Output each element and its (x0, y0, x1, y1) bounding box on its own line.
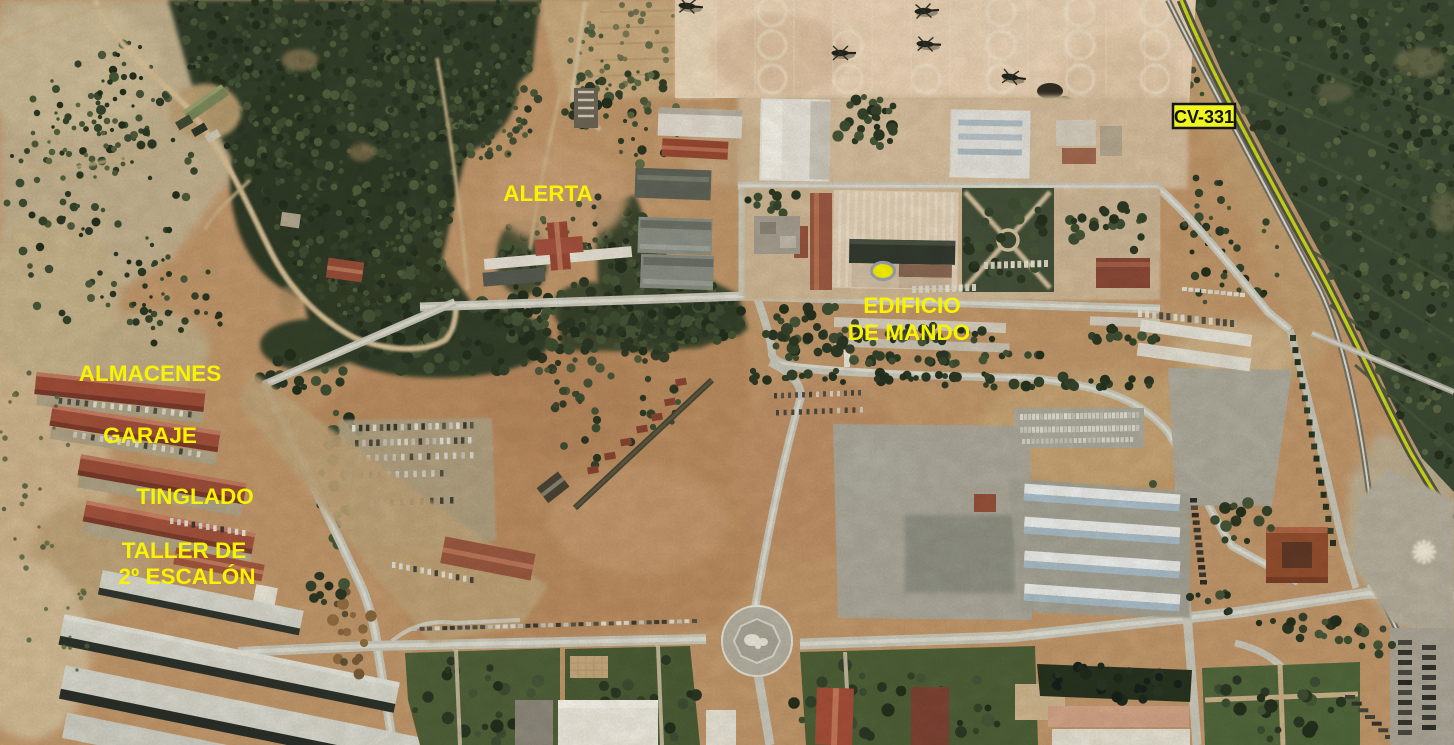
svg-text:DE MANDO: DE MANDO (848, 320, 971, 345)
svg-text:ALMACENES: ALMACENES (79, 361, 222, 386)
svg-text:GARAJE: GARAJE (103, 423, 197, 448)
svg-text:EDIFICIO: EDIFICIO (863, 293, 961, 318)
svg-text:TINGLADO: TINGLADO (136, 484, 254, 509)
svg-text:TALLER DE: TALLER DE (122, 538, 247, 563)
svg-text:CV-331: CV-331 (1174, 107, 1234, 127)
svg-text:2º ESCALÓN: 2º ESCALÓN (119, 564, 256, 589)
svg-text:ALERTA: ALERTA (503, 181, 593, 206)
